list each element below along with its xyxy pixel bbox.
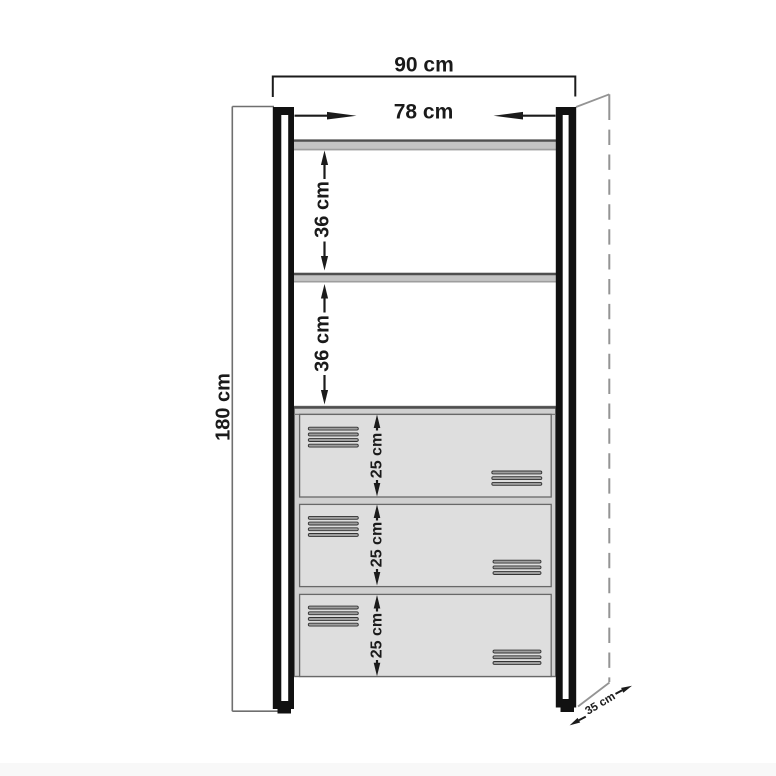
svg-text:78 cm: 78 cm (394, 101, 454, 124)
svg-text:90 cm: 90 cm (394, 54, 454, 77)
svg-text:180 cm: 180 cm (213, 373, 235, 441)
svg-text:25 cm: 25 cm (369, 522, 386, 567)
svg-text:36 cm: 36 cm (312, 315, 334, 372)
svg-text:36 cm: 36 cm (312, 181, 334, 238)
svg-text:25 cm: 25 cm (369, 433, 386, 478)
svg-text:25 cm: 25 cm (369, 613, 386, 658)
